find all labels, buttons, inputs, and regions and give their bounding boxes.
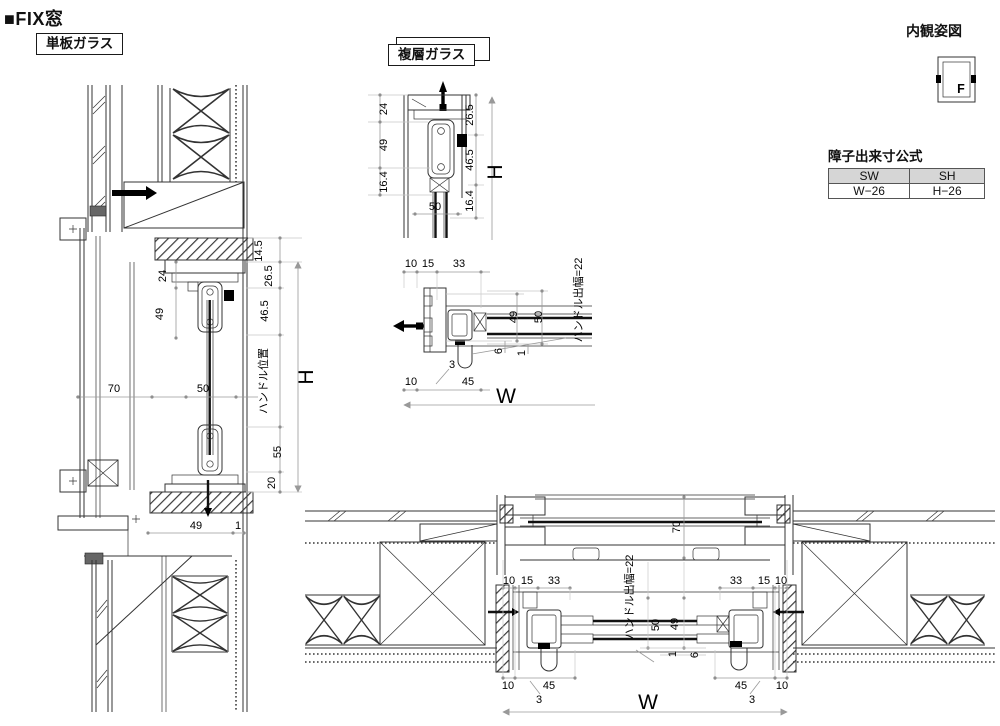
- single-glass-label: 単板ガラス: [36, 33, 123, 55]
- dim-label: 49: [378, 139, 390, 151]
- dim-label: W: [638, 691, 658, 714]
- dim-label: 1: [667, 651, 679, 657]
- dim-label: 46.5: [464, 149, 476, 170]
- dim-label: 50: [429, 201, 441, 213]
- dim-label: 15: [521, 575, 533, 587]
- dim-label: 50: [650, 619, 662, 631]
- dim-label: 3: [749, 694, 755, 706]
- formula-val-sh: H−26: [910, 184, 985, 199]
- annotation-handle-protrusion: ハンドル出幅=22: [571, 258, 585, 343]
- dim-label: 10: [776, 680, 788, 692]
- dim-label: 45: [543, 680, 555, 692]
- dim-label: 6: [689, 652, 701, 658]
- dim-label: 49: [669, 618, 681, 630]
- formula-table: SW SH W−26 H−26: [828, 168, 985, 199]
- drawing-page: 14.5 26.5 24 49 46.5 H ハンドル位置 55 20 70 5…: [0, 0, 1000, 726]
- double-glass-plan-section: 10 15 33 49 50 6 1 3 10 45 W ハンドル出幅=22: [393, 258, 595, 408]
- formula-col-sh: SH: [910, 169, 985, 184]
- interior-view-label: 内観姿図: [906, 21, 962, 41]
- formula-val-sw: W−26: [829, 184, 910, 199]
- dim-label: 46.5: [259, 300, 271, 321]
- double-glass-label: 複層ガラス: [388, 44, 475, 66]
- technical-drawing: 14.5 26.5 24 49 46.5 H ハンドル位置 55 20 70 5…: [0, 0, 1000, 726]
- double-glass-head-section: 24 49 16.4 26.5 46.5 16.4 50 H: [368, 81, 507, 240]
- formula-table-title: 障子出来寸公式: [828, 145, 985, 165]
- dim-label: 49: [154, 308, 166, 320]
- dim-label: 50: [533, 311, 545, 323]
- dim-label: 1: [516, 350, 528, 356]
- annotation-handle-protrusion: ハンドル出幅=22: [622, 555, 636, 640]
- page-title: ■FIX窓: [4, 5, 63, 31]
- dim-label: 45: [462, 376, 474, 388]
- dim-label: 10: [502, 680, 514, 692]
- dim-label: 70: [671, 521, 683, 533]
- annotation-handle-position: ハンドル位置: [256, 348, 270, 414]
- dim-label: 50: [197, 383, 209, 395]
- dim-label: 20: [266, 477, 278, 489]
- dim-label: 10: [775, 575, 787, 587]
- dim-label: 6: [493, 348, 505, 354]
- window-type-mark: F: [957, 82, 965, 96]
- dim-label: 14.5: [253, 240, 265, 261]
- dim-label: 49: [508, 311, 520, 323]
- dim-label: 33: [730, 575, 742, 587]
- dim-label: 10: [503, 575, 515, 587]
- window-elevation-icon: F: [936, 57, 976, 102]
- handle-outline: [458, 345, 472, 368]
- formula-col-sw: SW: [829, 169, 910, 184]
- handle-mark: [457, 134, 467, 147]
- dim-label: H: [484, 164, 507, 179]
- dim-label: 16.4: [378, 171, 390, 192]
- dim-label: 45: [735, 680, 747, 692]
- dim-label: 16.4: [464, 190, 476, 211]
- dim-label: 33: [453, 258, 465, 270]
- dim-label: 10: [405, 376, 417, 388]
- single-glass-section: 14.5 26.5 24 49 46.5 H ハンドル位置 55 20 70 5…: [58, 85, 318, 712]
- dim-label: 55: [272, 446, 284, 458]
- dim-label: 26.5: [263, 265, 275, 286]
- dim-label: 3: [536, 694, 542, 706]
- dim-label: 70: [108, 383, 120, 395]
- dim-label: 24: [378, 103, 390, 115]
- handle-outline: [731, 648, 747, 670]
- formula-table-block: 障子出来寸公式 SW SH W−26 H−26: [828, 145, 985, 199]
- dim-label: 24: [157, 270, 169, 282]
- dim-label: W: [496, 385, 516, 408]
- dim-label: 49: [190, 520, 202, 532]
- dim-label: H: [295, 369, 318, 384]
- full-width-plan-section: 70 ハンドル出幅=22 10 15 33 33 15 10 50 49 1 6…: [305, 495, 995, 714]
- dim-label: 33: [548, 575, 560, 587]
- dim-label: 15: [422, 258, 434, 270]
- dim-label: 15: [758, 575, 770, 587]
- dim-label: 3: [449, 359, 455, 371]
- dim-label: 26.5: [464, 104, 476, 125]
- dim-label: 1: [235, 520, 241, 532]
- dim-label: 10: [405, 258, 417, 270]
